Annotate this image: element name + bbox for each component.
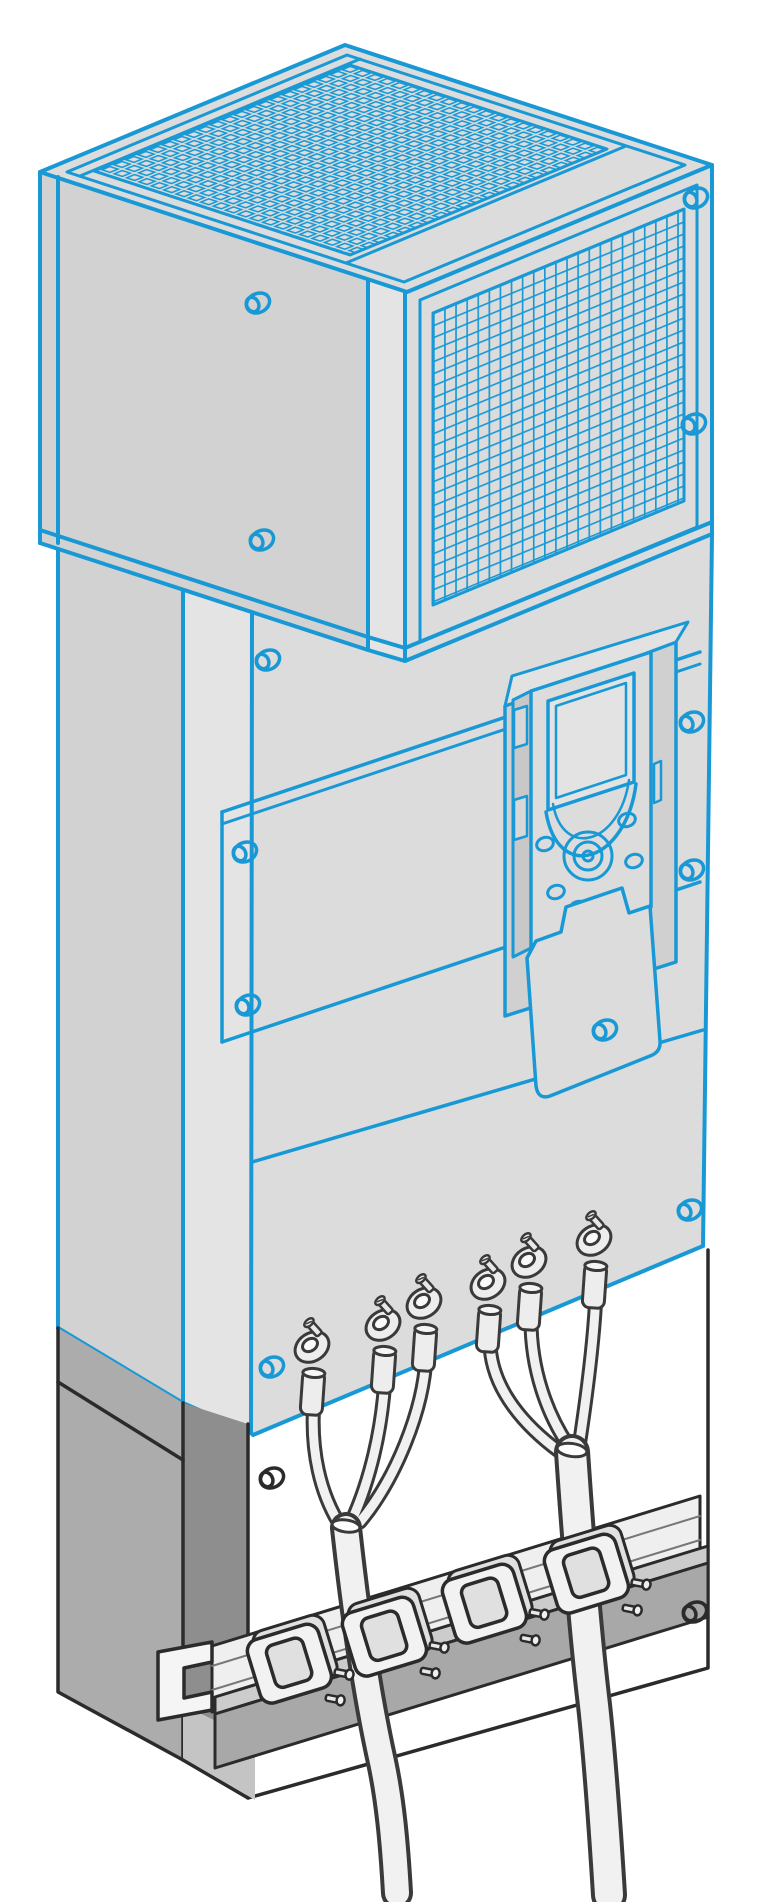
screw-icon — [257, 1464, 287, 1492]
drive-cabinet — [40, 45, 712, 1435]
body-left-face — [58, 549, 183, 1403]
illustration-stage: Isometric technical line drawing of a va… — [0, 0, 774, 1902]
cable-bundle-right — [556, 1441, 609, 1895]
vent-bevel-face — [368, 280, 405, 661]
drive-cabinet-illustration: Isometric technical line drawing of a va… — [0, 0, 774, 1902]
